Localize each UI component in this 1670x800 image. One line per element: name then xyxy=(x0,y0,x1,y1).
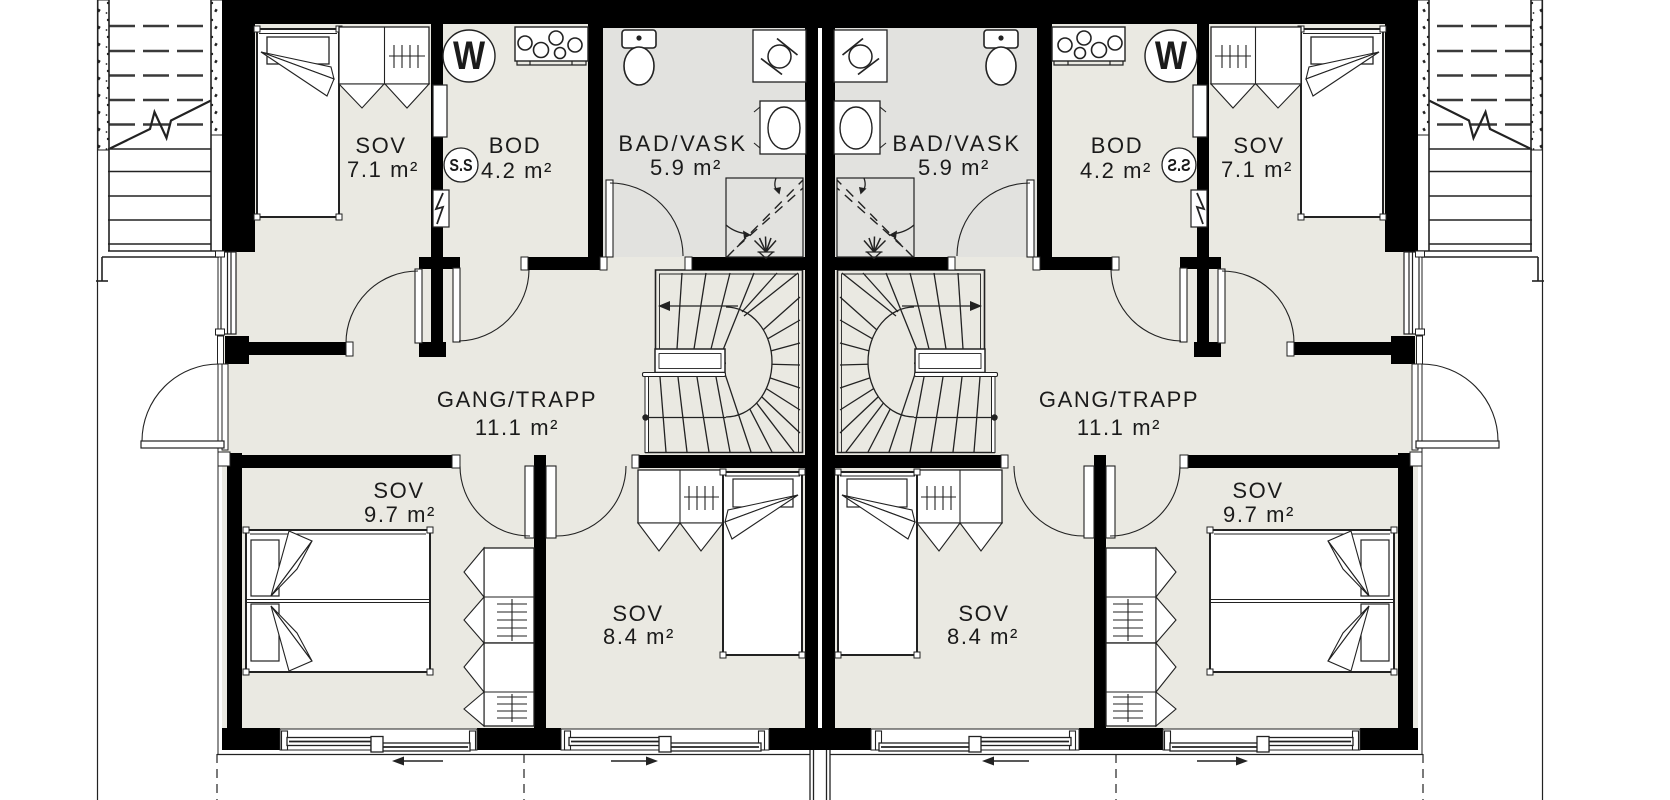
svg-text:GANG/TRAPP: GANG/TRAPP xyxy=(1039,387,1199,412)
svg-text:SOV: SOV xyxy=(958,601,1009,626)
svg-text:GANG/TRAPP: GANG/TRAPP xyxy=(437,387,597,412)
svg-text:SOV: SOV xyxy=(1233,133,1284,158)
svg-text:BOD: BOD xyxy=(1091,133,1143,158)
svg-text:7.1 m²: 7.1 m² xyxy=(1221,157,1293,182)
svg-text:SOV: SOV xyxy=(612,601,663,626)
svg-text:5.9 m²: 5.9 m² xyxy=(650,155,722,180)
svg-text:5.9 m²: 5.9 m² xyxy=(918,155,990,180)
svg-text:4.2 m²: 4.2 m² xyxy=(1080,158,1152,183)
svg-text:SOV: SOV xyxy=(355,133,406,158)
svg-text:8.4 m²: 8.4 m² xyxy=(947,624,1019,649)
svg-text:SOV: SOV xyxy=(373,478,424,503)
svg-text:4.2 m²: 4.2 m² xyxy=(481,158,553,183)
svg-text:9.7 m²: 9.7 m² xyxy=(364,502,436,527)
svg-text:9.7 m²: 9.7 m² xyxy=(1223,502,1295,527)
svg-text:11.1 m²: 11.1 m² xyxy=(475,415,559,440)
svg-text:8.4 m²: 8.4 m² xyxy=(603,624,675,649)
svg-text:SOV: SOV xyxy=(1232,478,1283,503)
svg-text:7.1 m²: 7.1 m² xyxy=(347,157,419,182)
svg-text:BAD/VASK: BAD/VASK xyxy=(892,131,1021,156)
svg-text:11.1 m²: 11.1 m² xyxy=(1077,415,1161,440)
svg-text:BOD: BOD xyxy=(489,133,541,158)
svg-text:BAD/VASK: BAD/VASK xyxy=(618,131,747,156)
